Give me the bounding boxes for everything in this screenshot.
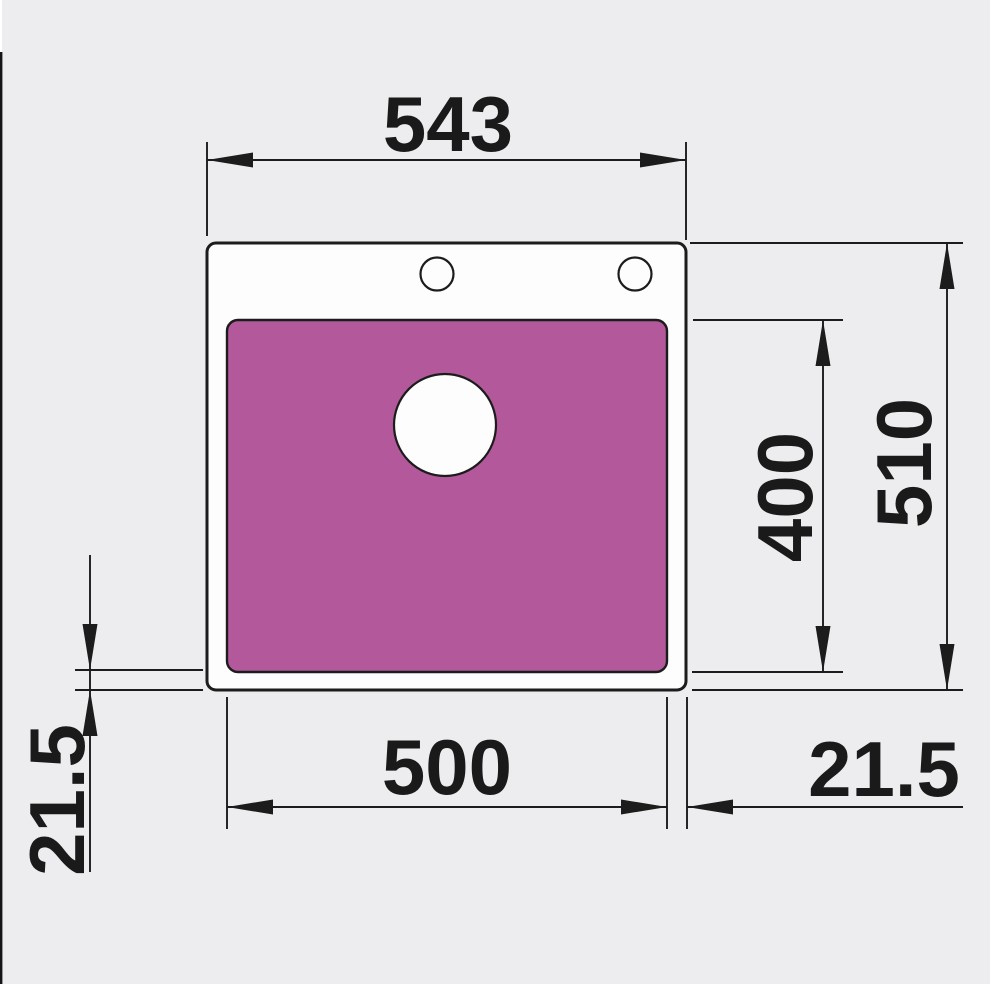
tap-hole-left bbox=[421, 258, 454, 291]
dimension-label-overall-depth: 510 bbox=[860, 398, 948, 528]
tap-hole-right bbox=[619, 258, 652, 291]
dimension-label-overall-width: 543 bbox=[383, 80, 513, 168]
sink-dimension-drawing: 543 510 400 500 21.5 bbox=[0, 0, 1000, 1000]
dimension-label-rim-left: 21.5 bbox=[13, 724, 101, 876]
dimension-label-bowl-width: 500 bbox=[382, 723, 512, 811]
dimension-label-rim-right: 21.5 bbox=[808, 725, 960, 813]
left-edge-artifact bbox=[0, 52, 2, 984]
sink-bowl bbox=[227, 320, 667, 672]
dimension-label-bowl-depth: 400 bbox=[741, 432, 829, 562]
drain-hole bbox=[394, 374, 496, 476]
